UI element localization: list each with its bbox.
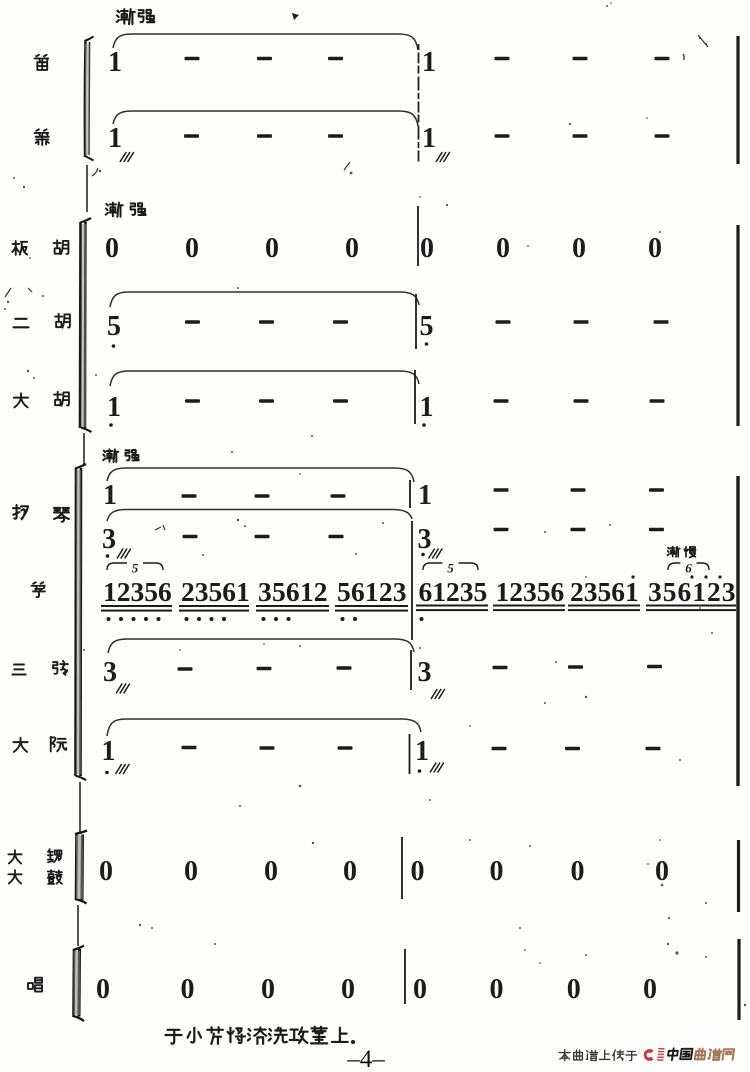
svg-text:5: 5 (107, 311, 121, 342)
svg-text:0: 0 (411, 856, 425, 887)
svg-text:0: 0 (490, 856, 504, 887)
svg-text:0: 0 (496, 233, 510, 264)
svg-text:23561: 23561 (570, 576, 639, 607)
svg-text:1: 1 (422, 47, 436, 78)
svg-text:23561: 23561 (181, 576, 250, 607)
svg-text:1: 1 (418, 480, 432, 511)
svg-text:5: 5 (447, 561, 454, 576)
svg-text:35612: 35612 (258, 576, 328, 607)
svg-text:0: 0 (643, 974, 657, 1005)
svg-text:1: 1 (422, 123, 436, 154)
svg-text:3: 3 (418, 524, 432, 555)
svg-text:12356: 12356 (496, 576, 565, 607)
svg-text:0: 0 (571, 856, 585, 887)
svg-text:3: 3 (418, 657, 432, 688)
svg-text:6: 6 (685, 561, 692, 576)
svg-text:–4–: –4– (346, 1046, 385, 1072)
svg-text:1: 1 (415, 736, 429, 767)
svg-text:0: 0 (341, 974, 355, 1005)
svg-text:1: 1 (102, 736, 116, 767)
svg-text:3: 3 (103, 657, 117, 688)
svg-text:0: 0 (572, 233, 586, 264)
svg-text:3: 3 (102, 524, 116, 555)
svg-text:1: 1 (108, 123, 122, 154)
svg-text:0: 0 (567, 974, 581, 1005)
svg-text:0: 0 (343, 856, 357, 887)
svg-text:0: 0 (96, 974, 110, 1005)
svg-text:1: 1 (108, 47, 122, 78)
svg-text:0: 0 (265, 233, 279, 264)
svg-text:0: 0 (655, 856, 669, 887)
svg-text:61235: 61235 (419, 576, 488, 607)
svg-text:0: 0 (184, 856, 198, 887)
svg-text:0: 0 (181, 974, 195, 1005)
svg-text:56123: 56123 (337, 576, 407, 607)
svg-text:1: 1 (103, 480, 117, 511)
svg-text:0: 0 (99, 856, 113, 887)
svg-text:0: 0 (413, 974, 427, 1005)
svg-text:0: 0 (420, 233, 434, 264)
svg-text:0: 0 (345, 233, 359, 264)
svg-text:1: 1 (420, 392, 434, 423)
svg-text:0: 0 (648, 233, 662, 264)
svg-text:1: 1 (107, 392, 121, 423)
svg-text:12356: 12356 (103, 576, 172, 607)
svg-text:0: 0 (185, 233, 199, 264)
svg-text:0: 0 (105, 233, 119, 264)
svg-text:0: 0 (264, 856, 278, 887)
svg-text:0: 0 (490, 974, 504, 1005)
svg-text:0: 0 (261, 974, 275, 1005)
svg-text:5: 5 (132, 561, 139, 576)
svg-text:5: 5 (420, 311, 434, 342)
svg-text:356123: 356123 (648, 576, 737, 607)
